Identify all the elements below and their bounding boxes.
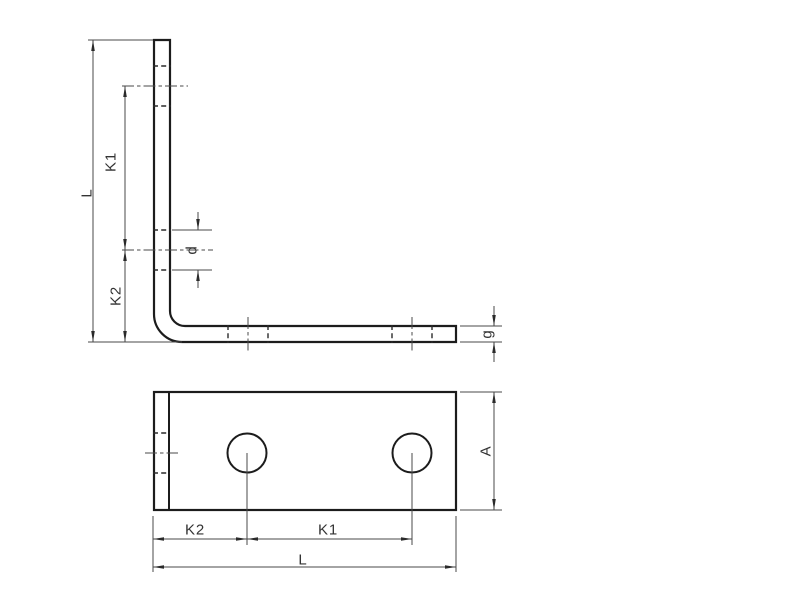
drawing-canvas: L K1 K2 d g A K2 K1 L (0, 0, 800, 600)
side-view-centerlines (122, 86, 412, 351)
side-view-hidden-hole-lines-vertical-leg (153, 66, 171, 270)
dim-label-side-overall-length: L (80, 188, 95, 197)
side-view (88, 40, 502, 362)
dim-label-hole-diameter: d (185, 245, 200, 254)
plan-view-arrowheads (153, 392, 496, 569)
dim-label-plan-k1: K1 (318, 523, 338, 538)
dim-label-plan-overall-length: L (298, 553, 307, 568)
side-view-hidden-hole-lines-horizontal-leg (228, 325, 432, 343)
dim-label-side-k2: K2 (109, 286, 124, 306)
plan-view-dimension-lines (153, 392, 494, 567)
dim-label-plan-width: A (479, 446, 494, 457)
plan-view-plate-outline (154, 392, 456, 510)
dim-label-plan-k2: K2 (185, 523, 205, 538)
plan-view (145, 392, 502, 572)
side-view-extension-lines (88, 40, 502, 342)
dim-label-thickness: g (480, 329, 495, 338)
dim-label-side-k1: K1 (104, 152, 119, 172)
side-view-arrowheads (91, 40, 496, 353)
side-view-bracket-outline (154, 40, 456, 342)
plan-view-extension-lines (153, 392, 502, 572)
